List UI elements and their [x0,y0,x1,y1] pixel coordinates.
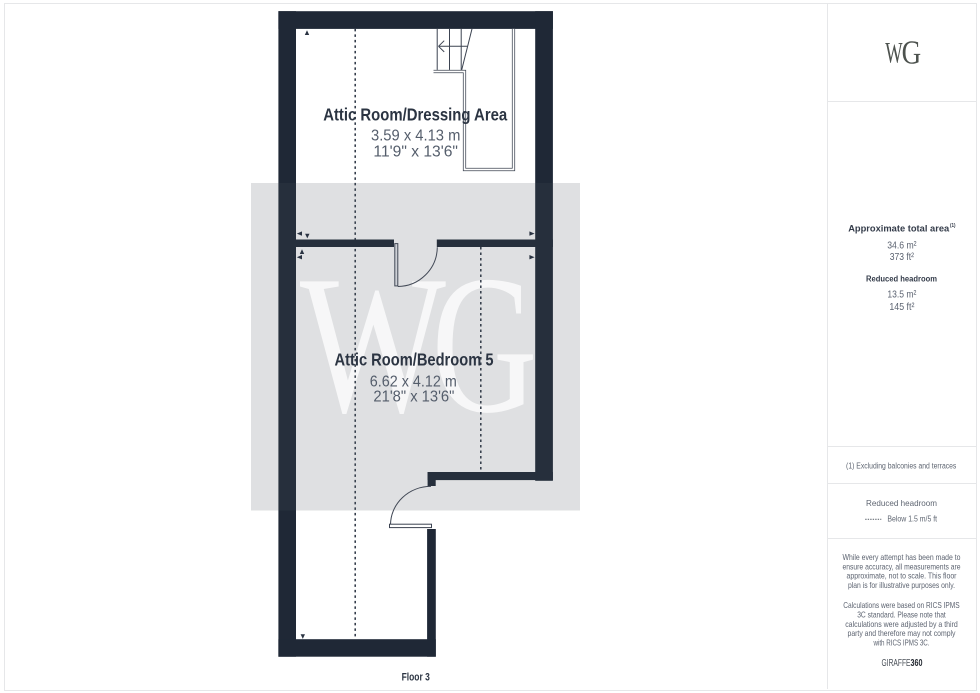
svg-text:34.6 m²: 34.6 m² [887,240,917,252]
svg-text:G: G [902,35,922,72]
svg-text:13.5 m²: 13.5 m² [887,289,916,301]
svg-text:360: 360 [911,658,923,669]
svg-text:Attic Room/Dressing Area: Attic Room/Dressing Area [323,105,507,125]
svg-text:Reduced headroom: Reduced headroom [866,498,937,508]
svg-text:GIRAFFE: GIRAFFE [882,658,911,669]
svg-text:Below 1.5 m/5 ft: Below 1.5 m/5 ft [887,514,937,524]
svg-text:(1) Excluding balconies and te: (1) Excluding balconies and terraces [846,461,956,470]
svg-text:Attic Room/Bedroom 5: Attic Room/Bedroom 5 [335,350,494,370]
svg-text:3.59 x 4.13 m: 3.59 x 4.13 m [371,127,460,144]
svg-text:W: W [885,37,903,70]
svg-text:373 ft²: 373 ft² [890,251,915,263]
svg-text:(1): (1) [950,223,956,229]
svg-text:with RICS IPMS 3C.: with RICS IPMS 3C. [873,638,930,648]
svg-text:plan is for illustrative purpo: plan is for illustrative purposes only. [848,580,955,590]
svg-text:Reduced headroom: Reduced headroom [866,275,937,284]
svg-text:11'9" x 13'6": 11'9" x 13'6" [373,143,458,160]
svg-text:Floor 3: Floor 3 [402,671,430,683]
svg-text:145 ft²: 145 ft² [889,301,914,313]
svg-text:21'8" x 13'6": 21'8" x 13'6" [373,388,454,405]
svg-text:Approximate total area: Approximate total area [848,224,950,235]
svg-text:Calculations were based on RIC: Calculations were based on RICS IPMS [843,600,960,610]
